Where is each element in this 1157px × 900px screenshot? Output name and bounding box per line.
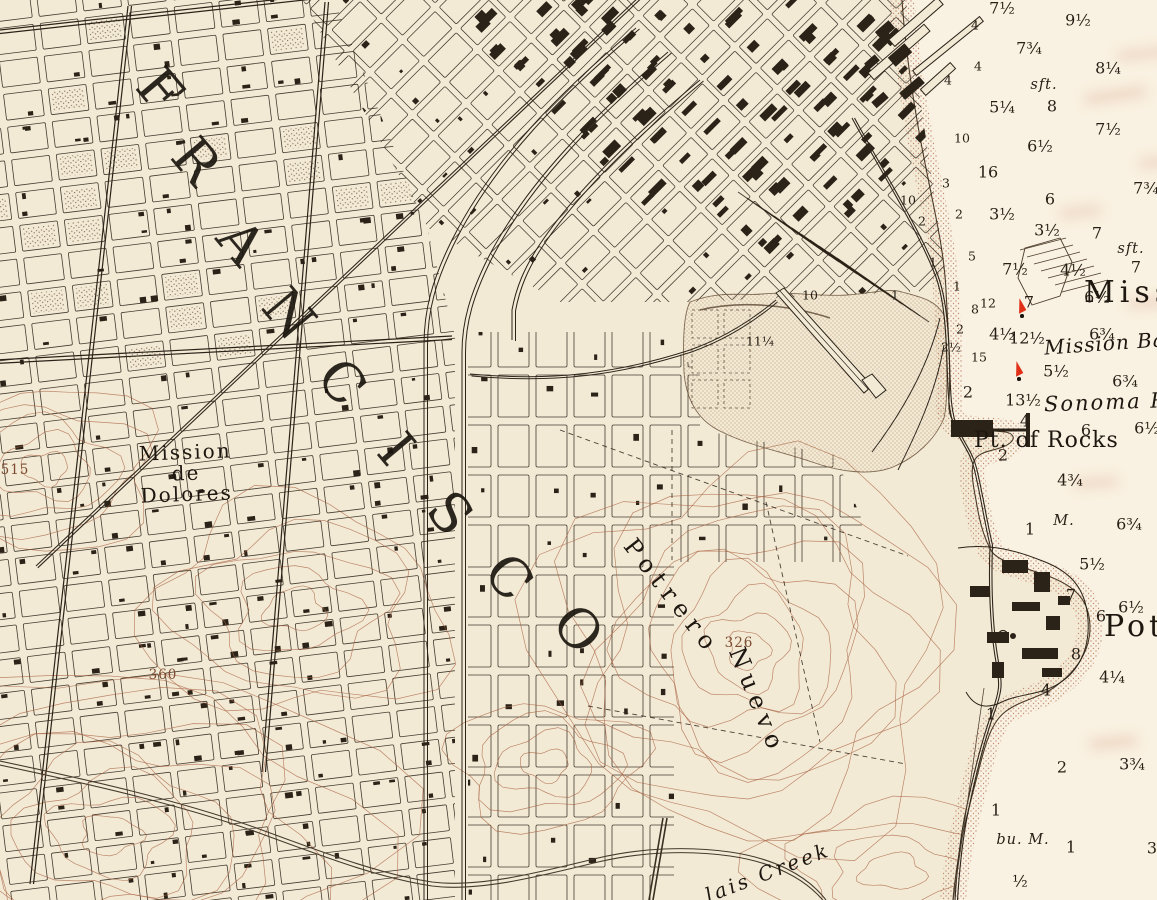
historical-map-of-san-francisco: FRANCISCO 7½9½7¾4448¼sft.5¼87½6½101637¾6… bbox=[0, 0, 1157, 900]
map-canvas bbox=[0, 0, 1157, 900]
